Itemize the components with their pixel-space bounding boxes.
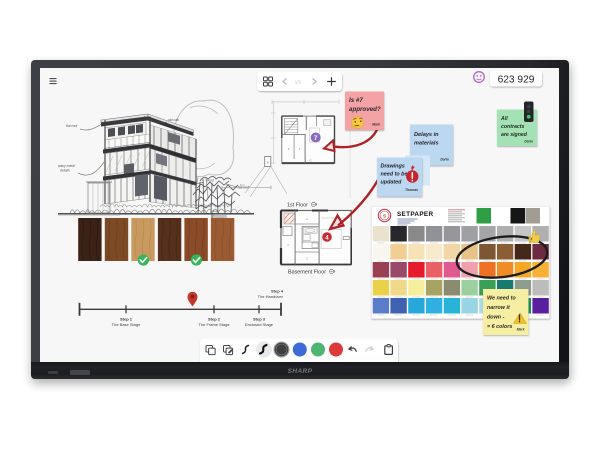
- svg-text:need to be: need to be: [381, 171, 408, 177]
- svg-text:materials: materials: [414, 140, 439, 146]
- svg-text:1st Floor: 1st Floor: [287, 202, 308, 208]
- svg-text:narrow it: narrow it: [487, 305, 510, 311]
- svg-text:Step 1: Step 1: [120, 316, 133, 321]
- svg-text:Drawings: Drawings: [381, 163, 405, 169]
- svg-text:Thomas: Thomas: [405, 188, 418, 192]
- svg-text:contracts: contracts: [501, 124, 524, 130]
- svg-text:The Frame Stage: The Frame Stage: [198, 322, 230, 327]
- svg-text:All: All: [500, 116, 508, 122]
- svg-text:Step 2: Step 2: [208, 316, 221, 321]
- svg-text:Enclosed Stage: Enclosed Stage: [245, 322, 274, 327]
- svg-text:B: B: [267, 160, 269, 164]
- svg-text:Delays in: Delays in: [414, 132, 439, 138]
- svg-text:down -: down -: [487, 314, 505, 320]
- svg-text:= 6 colors: = 6 colors: [487, 324, 512, 330]
- svg-text:wood: wood: [206, 178, 214, 182]
- svg-text:1/1: 1/1: [295, 79, 302, 85]
- svg-text:Mark: Mark: [517, 327, 526, 331]
- svg-text:details: details: [60, 168, 70, 172]
- svg-text:The Handover: The Handover: [258, 294, 284, 299]
- svg-text:wavy metal: wavy metal: [58, 164, 75, 168]
- svg-text:Step 4: Step 4: [271, 288, 284, 293]
- svg-text:updated: updated: [381, 179, 403, 185]
- svg-text:S: S: [383, 213, 386, 218]
- svg-text:Basement Floor: Basement Floor: [288, 269, 326, 275]
- svg-text:flat roof: flat roof: [66, 124, 78, 128]
- svg-text:Mark: Mark: [372, 122, 381, 126]
- svg-text:...: ...: [432, 212, 435, 217]
- svg-text:SETPAPER: SETPAPER: [397, 210, 433, 217]
- svg-text:4: 4: [325, 234, 329, 241]
- svg-text:old oak: old oak: [168, 118, 179, 122]
- svg-text:Is #7: Is #7: [349, 97, 363, 104]
- svg-text:Dario: Dario: [440, 157, 449, 161]
- svg-text:are signed: are signed: [501, 132, 528, 138]
- svg-text:7: 7: [314, 135, 318, 142]
- svg-text:623 929: 623 929: [498, 74, 535, 85]
- svg-text:G: G: [309, 158, 311, 162]
- svg-text:6 m: 6 m: [240, 183, 245, 187]
- svg-text:The Base Stage: The Base Stage: [112, 322, 141, 327]
- svg-text:step: step: [212, 209, 218, 213]
- svg-text:Dario: Dario: [524, 139, 533, 143]
- svg-text:Step 3: Step 3: [253, 316, 266, 321]
- svg-text:approved?: approved?: [349, 106, 381, 113]
- svg-text:We need to: We need to: [487, 295, 516, 301]
